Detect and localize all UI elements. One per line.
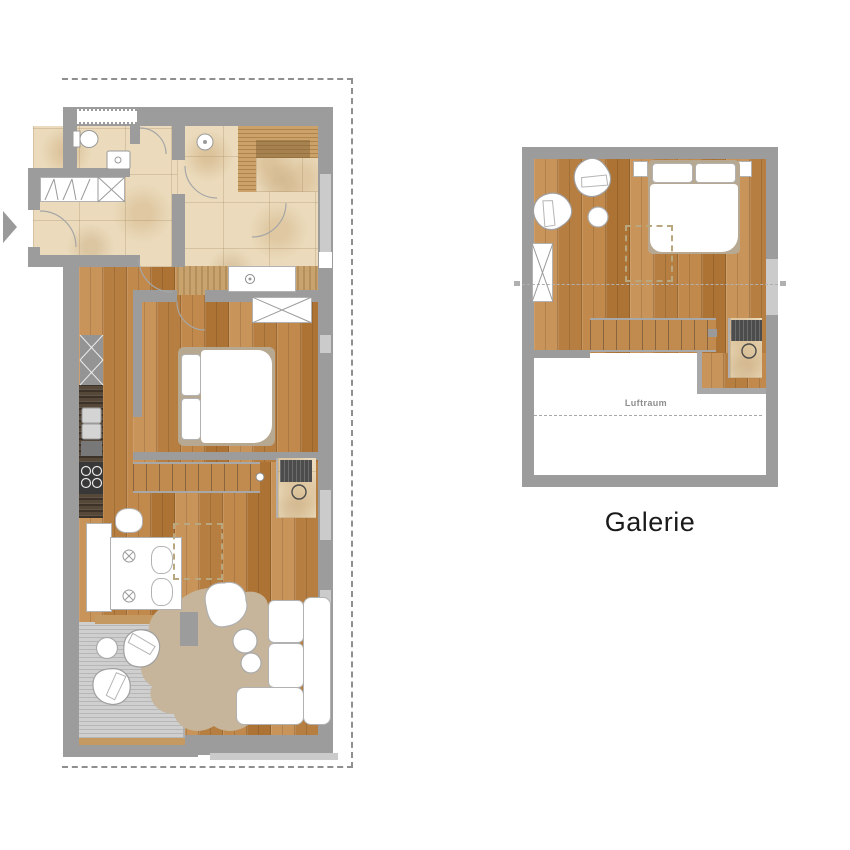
- desk-equipment-galerie: [731, 320, 762, 341]
- floorplan-scene: Luftraum: [0, 0, 850, 850]
- galerie-wardrobe: [532, 243, 553, 302]
- wall-vestibule-left-a: [28, 177, 40, 210]
- galerie-window-right: [766, 259, 778, 315]
- staircase-galerie: [590, 318, 716, 352]
- galerie-plan-title: Galerie: [555, 505, 745, 539]
- galerie-wall-inner-right-h: [697, 388, 766, 394]
- galerie-nightstand-left: [633, 161, 648, 177]
- site-boundary: [62, 78, 353, 768]
- galerie-wall-bottom: [522, 475, 778, 487]
- galerie-section-tick-left: [514, 281, 520, 286]
- galerie-wall-inner-right-v: [697, 352, 702, 392]
- galerie-wall-top: [522, 147, 778, 159]
- galerie-section-line: [522, 284, 778, 285]
- galerie-wall-inner-left: [522, 350, 590, 358]
- galerie-wall-right: [766, 147, 778, 487]
- furniture-placeholder-galerie: [625, 225, 673, 282]
- galerie-bed-pillow-1: [652, 163, 693, 183]
- galerie-section-tick-right: [780, 281, 786, 286]
- galerie-bed-pillow-2: [695, 163, 736, 183]
- entrance-arrow-icon: [3, 211, 17, 243]
- wall-vestibule-top: [28, 168, 65, 177]
- galerie-wall-left: [522, 147, 534, 487]
- void-label: Luftraum: [601, 398, 691, 410]
- stair-post-galerie: [708, 329, 717, 337]
- void-dashed-line: [534, 415, 762, 416]
